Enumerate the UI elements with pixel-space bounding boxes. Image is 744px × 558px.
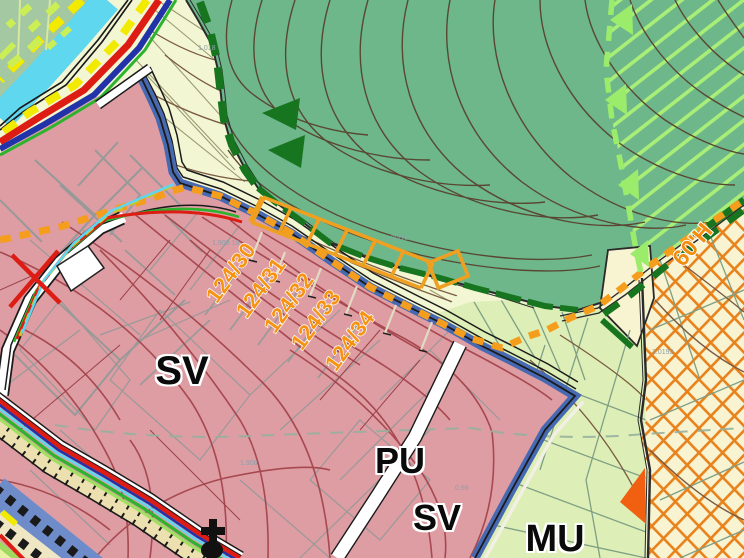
svg-text:SV: SV	[413, 497, 461, 538]
svg-text:0.98: 0.98	[455, 485, 469, 492]
svg-text:MU: MU	[525, 518, 584, 558]
svg-text:1.0192: 1.0192	[652, 349, 674, 356]
svg-text:PU: PU	[375, 440, 425, 481]
svg-text:1.00/18: 1.00/18	[385, 235, 408, 242]
svg-text:1.018: 1.018	[198, 45, 216, 52]
svg-text:1.908: 1.908	[240, 460, 258, 467]
svg-text:SV: SV	[155, 349, 209, 393]
svg-text:1.908 19: 1.908 19	[212, 240, 239, 247]
